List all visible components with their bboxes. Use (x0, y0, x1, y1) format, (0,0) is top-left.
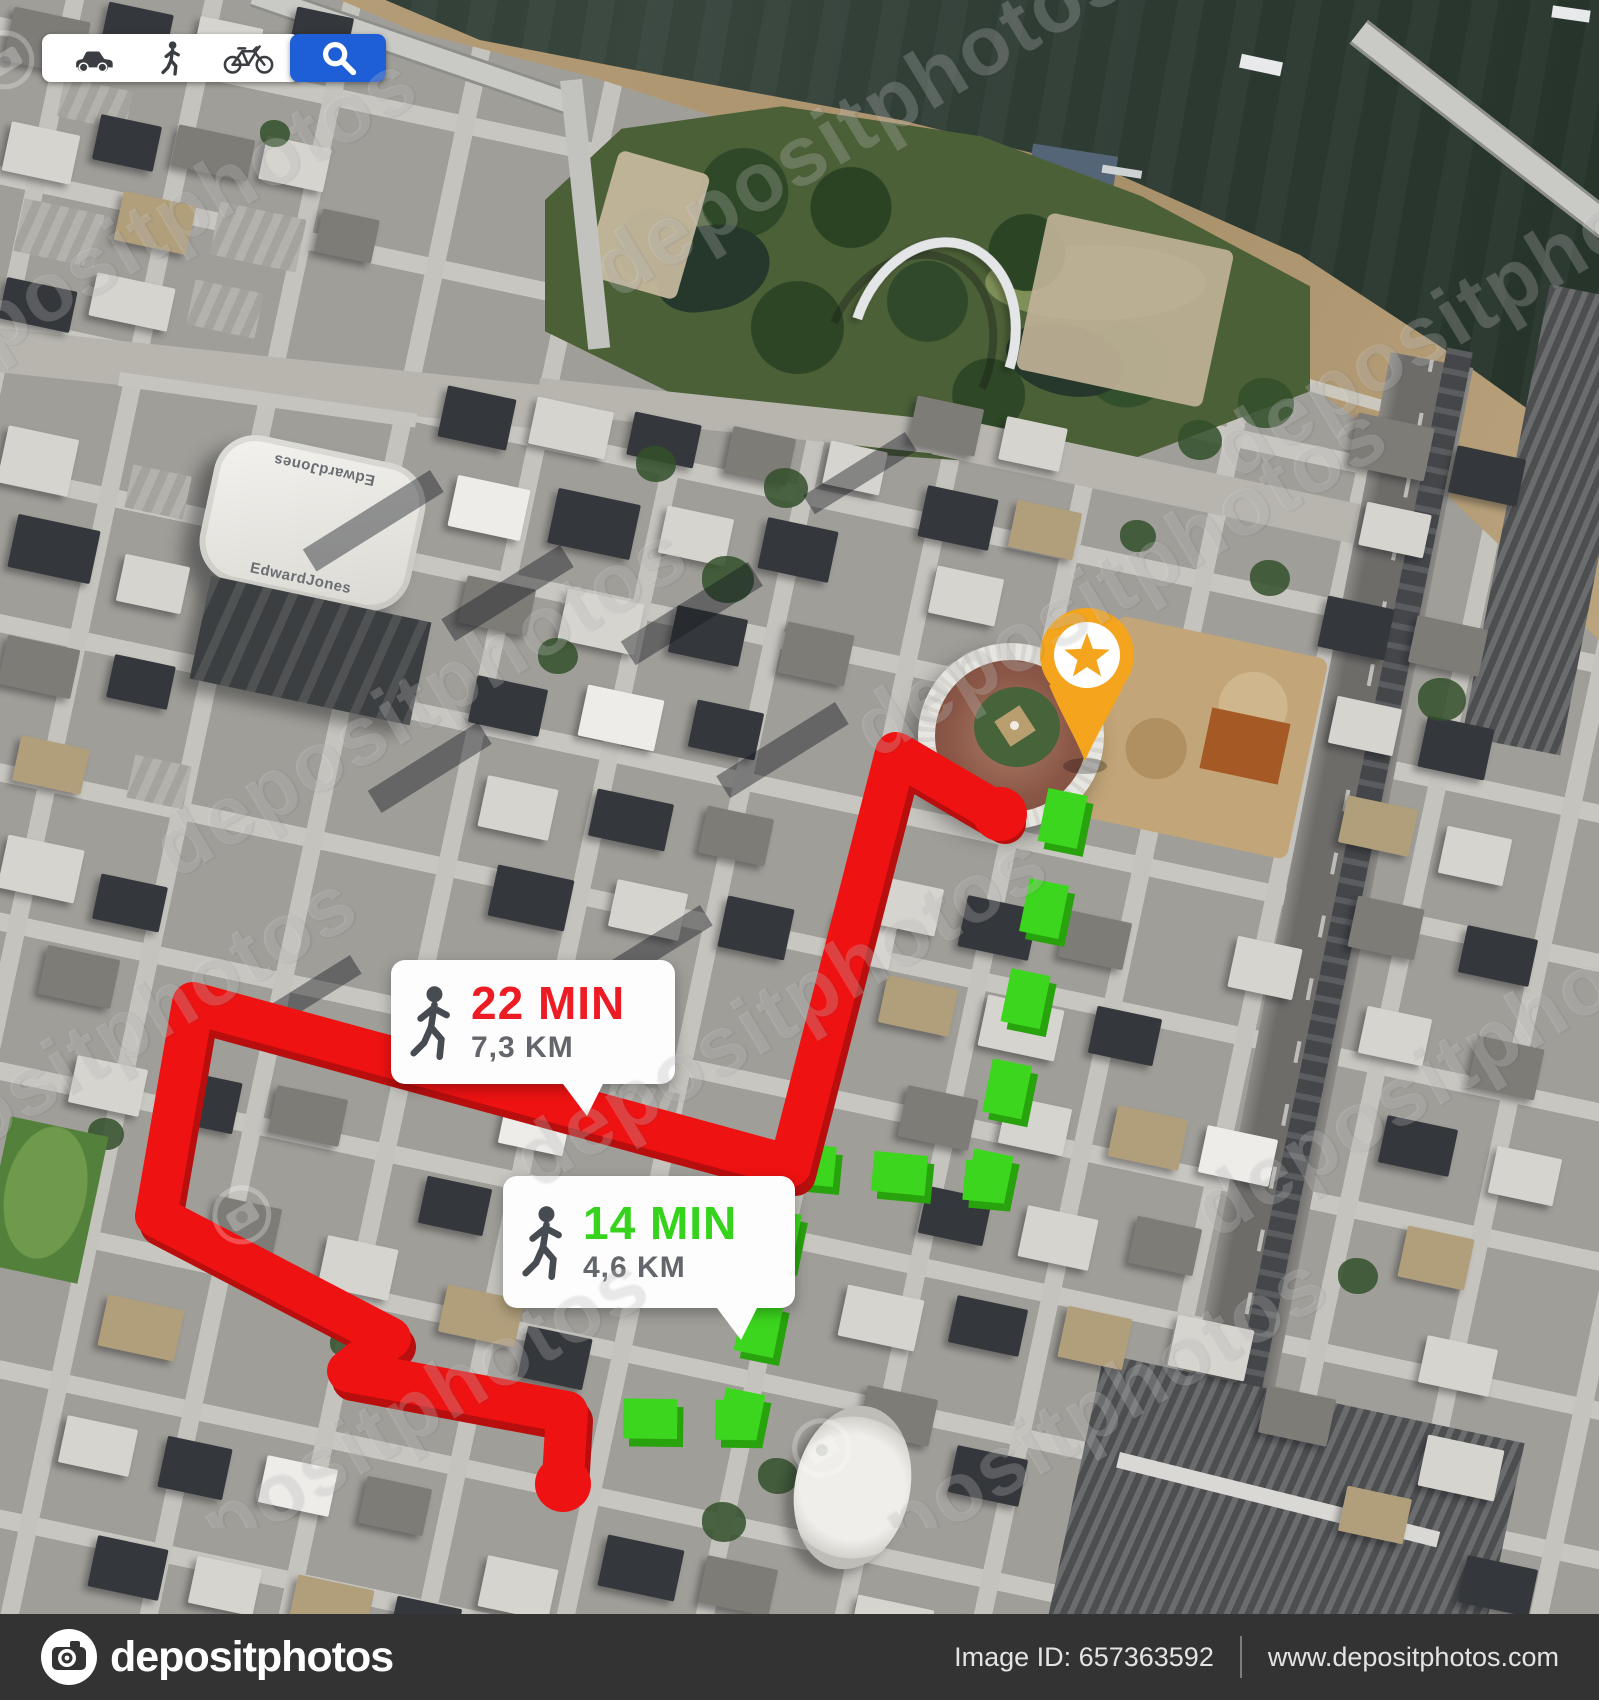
bubble-tail (563, 1084, 603, 1116)
route-short-info-bubble[interactable]: 14 MIN 4,6 KM (503, 1176, 795, 1308)
bubble-tail (717, 1308, 757, 1340)
tree-patch (1250, 560, 1290, 596)
dome-roof-label: EdwardJones (272, 451, 376, 489)
walk-mode-button[interactable] (142, 38, 200, 78)
route-end-cap (535, 1456, 591, 1512)
stock-footer-bar: depositphotos Image ID: 657363592 www.de… (0, 1614, 1599, 1700)
tree-patch (538, 638, 578, 674)
tree-patch (764, 468, 808, 508)
camera-logo-icon (40, 1628, 98, 1686)
map-canvas[interactable]: EdwardJones EdwardJones (0, 0, 1599, 1614)
bicycle-mode-button[interactable] (220, 38, 278, 78)
travel-mode-toolbar (42, 34, 386, 82)
car-mode-button[interactable] (64, 38, 122, 78)
route-long-info-bubble[interactable]: 22 MIN 7,3 KM (391, 960, 675, 1084)
route-short-distance: 4,6 KM (583, 1252, 737, 1283)
tree-patch (702, 1502, 746, 1542)
route-long-time: 22 MIN (471, 980, 625, 1028)
tree-patch (260, 120, 290, 147)
brand-name: depositphotos (110, 1633, 393, 1682)
tree-patch (1338, 1258, 1378, 1294)
route-short-time: 14 MIN (583, 1200, 737, 1248)
divider (1240, 1636, 1242, 1678)
brand-logo: depositphotos (40, 1628, 393, 1686)
car-icon (71, 43, 115, 73)
tree-patch (1418, 678, 1466, 721)
route-start-cap (973, 787, 1027, 841)
website-url: www.depositphotos.com (1268, 1642, 1559, 1673)
walking-person-icon (405, 980, 457, 1064)
search-button[interactable] (290, 34, 386, 82)
route-long-distance: 7,3 KM (471, 1032, 625, 1063)
image-id: Image ID: 657363592 (954, 1642, 1214, 1673)
tree-patch (758, 1458, 798, 1494)
screenshot-stage: EdwardJones EdwardJones (0, 0, 1599, 1700)
tree-patch (1238, 378, 1294, 428)
tree-patch (1120, 520, 1156, 552)
pedestrian-icon (159, 40, 183, 76)
tree-patch (636, 446, 676, 482)
walking-person-icon (517, 1200, 569, 1284)
tree-patch (1178, 420, 1222, 460)
bicycle-icon (223, 41, 275, 75)
footer-meta: Image ID: 657363592 www.depositphotos.co… (954, 1636, 1559, 1678)
search-icon (317, 37, 359, 79)
